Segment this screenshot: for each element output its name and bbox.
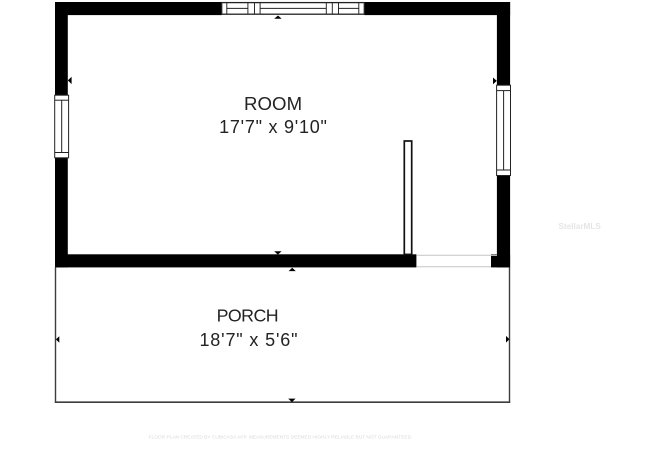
svg-text:PORCH: PORCH <box>217 306 278 326</box>
svg-text:StellarMLS: StellarMLS <box>559 222 602 231</box>
svg-text:17'7" x 9'10": 17'7" x 9'10" <box>219 117 327 137</box>
svg-text:ROOM: ROOM <box>244 93 302 114</box>
svg-text:FLOOR PLAN CREATED BY CUBICASA: FLOOR PLAN CREATED BY CUBICASA APP. MEAS… <box>149 435 413 441</box>
svg-text:18'7" x 5'6": 18'7" x 5'6" <box>199 330 298 350</box>
